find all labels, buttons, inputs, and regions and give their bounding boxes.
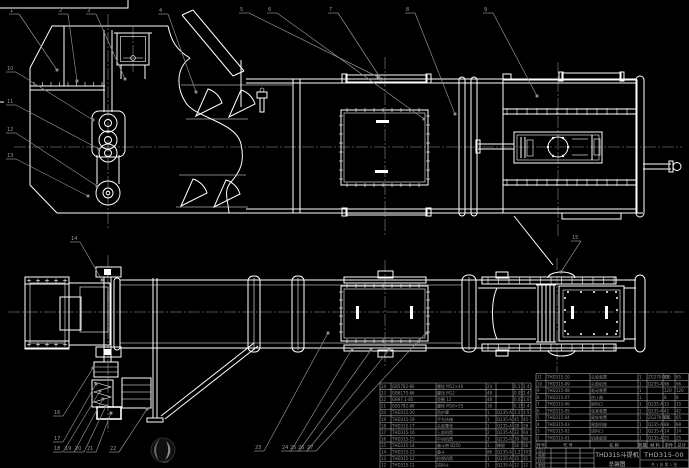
bucket: [196, 89, 222, 116]
leader-arrow: [96, 185, 99, 188]
bom-cell: 1: [639, 375, 642, 380]
balloon-13: 13: [6, 153, 89, 197]
leader-line: [63, 368, 93, 416]
bom-cell: GB5782-86: [392, 404, 415, 409]
bom-cell: 42: [676, 408, 682, 413]
bom-cell: 2.4: [523, 404, 530, 409]
bom-cell: 卸料口: [591, 401, 603, 407]
bom-cell: 45: [523, 417, 529, 422]
bom-cell: 30: [514, 436, 520, 441]
bolt-dot: [564, 330, 566, 332]
leader-line: [16, 159, 88, 196]
bom-cell: 12: [514, 463, 520, 468]
bom-cell: 0.05: [514, 391, 523, 396]
bom-cell: 平台扶梯: [437, 416, 453, 422]
bom-cell: 头部罩壳: [437, 422, 453, 428]
gear-housing: [92, 111, 125, 157]
bom-cell: Q235-A: [497, 450, 512, 455]
balloon-10: 10: [6, 66, 94, 121]
bom-cell: Q235-A: [648, 435, 663, 440]
balloon-8: 8: [405, 7, 456, 115]
drawing-subtitle: 总装图: [609, 460, 626, 468]
bom-cell: 中间机筒: [437, 435, 453, 441]
bom-cell: 12: [523, 463, 529, 468]
bom-cell: 14: [381, 450, 387, 455]
bom-cell: 1: [639, 415, 642, 420]
bom-cell: 11: [537, 375, 543, 380]
bom-cell: Q235-A: [497, 463, 512, 468]
balloon-number: 12: [7, 127, 13, 133]
bom-cell: THD315-01: [546, 435, 570, 440]
bom-cell: 3: [487, 436, 490, 441]
balloon-22: 22: [109, 408, 148, 452]
takeup-rod-right: [643, 161, 681, 172]
leader-arrow: [454, 113, 457, 116]
leader-line: [63, 391, 100, 452]
balloon-number: 5: [240, 7, 243, 13]
bom-cell: Q235-A: [497, 423, 512, 428]
bom-cell: 15: [664, 402, 670, 407]
leader-arrow: [124, 78, 127, 81]
bom-cell: 14: [676, 429, 682, 434]
bom-cell: 垫圈 12: [437, 396, 452, 402]
bom-cell: THD315-05: [546, 408, 570, 413]
leader-arrow: [370, 349, 373, 352]
bolt-dot: [615, 333, 617, 335]
approval-label: 审核: [538, 463, 546, 468]
bom-cell: 1: [639, 422, 642, 427]
bom-cell: 3.5: [523, 410, 530, 415]
bom-cell: 56: [523, 443, 529, 448]
balloon-number: 11: [7, 99, 13, 105]
balloon-6: 6: [267, 7, 425, 120]
assembly-drawing: 1234567891011121314151617181920212223242…: [0, 0, 689, 468]
bolt-dot: [593, 291, 595, 293]
bom-cell: 86: [487, 450, 493, 455]
balloon-23: 23: [254, 332, 329, 451]
balloon-number: 26: [298, 445, 304, 451]
bom-cell: 19: [381, 417, 387, 422]
balloon-number: 25: [290, 445, 296, 451]
balloon-number: 18: [54, 446, 60, 452]
leader-line: [80, 242, 102, 280]
bom-cell: 1: [487, 410, 490, 415]
bom-cell: THD315-20: [391, 410, 415, 415]
bom-cell: 检视机筒: [437, 455, 453, 461]
bom-cell: 4: [537, 422, 540, 427]
leader-arrow: [388, 349, 391, 352]
balloon-number: 14: [71, 236, 77, 242]
bom-cell: 尾轮装置: [591, 414, 607, 420]
bolt-dot: [580, 291, 582, 293]
bom-cell: 进料斗: [437, 462, 449, 468]
bolt-dot: [606, 333, 608, 335]
leader-arrow: [423, 118, 426, 121]
bom-cell: 28: [523, 423, 529, 428]
bom-cell: Q235-A: [648, 402, 663, 407]
bom-cell: 畚斗: [437, 449, 445, 455]
leader-line: [19, 14, 57, 70]
bom-cell: Q235-A: [497, 430, 512, 435]
bom-cell: 24: [487, 384, 493, 389]
bom-cell: 85: [664, 375, 670, 380]
bom-cell: 35: [523, 456, 529, 461]
bom-cell: 畚斗带 B250: [437, 442, 461, 448]
balloon-number: 19: [65, 446, 71, 452]
bolt-dot: [564, 297, 566, 299]
bom-cell: 1: [639, 381, 642, 386]
bucket-bolt: [257, 88, 267, 112]
balloon-number: 24: [282, 445, 288, 451]
bom-cell: THD315-02: [546, 429, 570, 434]
bom-cell: 15: [381, 443, 387, 448]
bom-cell: 3: [537, 429, 540, 434]
balloon-9: 9: [483, 7, 538, 97]
bom-cell: 24: [381, 384, 387, 389]
bom-cell: THD315-10: [546, 375, 570, 380]
bom-cell: 65: [664, 415, 670, 420]
drive-bracket: [122, 378, 151, 408]
bom-cell: 45: [514, 417, 520, 422]
bom-cell: 85: [676, 375, 682, 380]
door-handle: [375, 170, 388, 173]
elevation-view: [14, 10, 682, 265]
balloon-number: 22: [110, 446, 116, 452]
bom-cell: THD315-04: [546, 415, 570, 420]
leader-arrow: [56, 69, 59, 72]
bom-header-cell: 代 号: [563, 441, 573, 448]
bom-cell: 16: [381, 436, 387, 441]
leader-line: [74, 399, 103, 452]
balloon-number: 3: [87, 8, 90, 14]
bom-header-cell: 材 料: [650, 441, 661, 448]
bom-cell: 88: [676, 422, 682, 427]
bom-cell: 2.4: [523, 384, 530, 389]
balloon-number: 8: [406, 7, 409, 13]
bom-cell: 6: [537, 408, 540, 413]
balloon-2: 2: [58, 8, 78, 82]
bom-cell: THD315-03: [546, 422, 570, 427]
bom-cell: 9: [537, 388, 540, 393]
bom-table: 11THD315-10头轮装置1ZG270-500858510THD315-09…: [536, 374, 689, 442]
balloon-number: 1: [10, 8, 13, 14]
leader-line: [561, 241, 581, 272]
bom-cell: 18: [381, 423, 387, 428]
bom-cell: 1: [487, 417, 490, 422]
bom-cell: Q235-A: [648, 422, 663, 427]
bom-cell: 1: [639, 435, 642, 440]
bolt-dot: [580, 333, 582, 335]
balloon-number: 23: [255, 445, 261, 451]
leader-line: [493, 13, 537, 96]
door-handle: [376, 120, 389, 123]
bom-cell: 驱动装置: [591, 387, 607, 393]
bom-cell: Q235-A: [497, 410, 512, 415]
leader-arrow: [99, 390, 102, 393]
bom-cell: THD315-09: [546, 381, 570, 386]
bom-cell: 13: [381, 456, 387, 461]
bom-cell: 2: [537, 435, 540, 440]
bucket: [181, 179, 207, 206]
bom-cell: 橡胶: [497, 442, 505, 448]
bucket: [229, 90, 255, 117]
balloon-18: 18: [53, 390, 101, 452]
bom-cell: 120: [664, 388, 672, 393]
bom-cell: 防护罩: [437, 409, 449, 415]
leader-arrow: [87, 195, 90, 198]
bom-cell: 1: [639, 395, 642, 400]
bearing-bottom: [96, 347, 121, 357]
bom-cell: Q235-A: [497, 436, 512, 441]
bom-cell: 1: [639, 402, 642, 407]
bom-cell: 48: [487, 397, 493, 402]
bolt-dot: [616, 309, 618, 311]
balloon-number: 21: [87, 446, 93, 452]
bom-cell: 头轮装置: [591, 374, 607, 380]
bolt-dot: [593, 333, 595, 335]
title-block: THD315斗提机 总装图 THD315-00 共 1 张 第 1 张 设计制图…: [536, 448, 689, 468]
bom-cell: 2.4: [523, 391, 530, 396]
balloon-20: 20: [74, 405, 107, 452]
leader-line: [119, 409, 147, 452]
bucket-chute: [168, 26, 300, 213]
drawing-title: THD315斗提机: [594, 451, 639, 459]
door-handle: [410, 306, 413, 319]
bom-table: 24GB5782-86螺栓 M12×40240.12.423GB6170-86螺…: [380, 383, 531, 468]
bom-cell: THD315-14: [391, 443, 415, 448]
bom-cell: Q235-A: [497, 456, 512, 461]
bom-cell: THD315-11: [391, 463, 415, 468]
projection-line: [514, 216, 553, 265]
logo-watermark: [151, 438, 175, 463]
bom-cell: 1: [487, 423, 490, 428]
leader-arrow: [92, 119, 95, 122]
bom-cell: GB6170-86: [392, 391, 415, 396]
bom-cell: 张紧装置: [591, 407, 607, 413]
bom-cell: THD315-06: [546, 402, 570, 407]
bom-cell: 螺栓 M16×55: [437, 403, 464, 409]
balloon-number: 4: [159, 8, 162, 14]
bom-cell: 21: [381, 404, 387, 409]
bom-cell: 5: [537, 415, 540, 420]
head-drum: [60, 297, 81, 330]
bom-cell: 1: [487, 443, 490, 448]
coupling: [94, 362, 118, 377]
bom-cell: 28: [514, 423, 520, 428]
leader-line: [168, 14, 196, 92]
bom-cell: 1: [639, 388, 642, 393]
balloon-number: 6: [268, 7, 271, 13]
bom-header-row: 件号代 号名 称数量材 料单件总计: [536, 441, 689, 448]
bom-cell: 0.15: [514, 404, 523, 409]
bom-cell: 17: [381, 430, 387, 435]
leader-arrow: [327, 332, 330, 335]
bom-cell: 进料口: [591, 428, 603, 434]
bom-cell: 1: [487, 456, 490, 461]
bom-cell: 上部机筒: [437, 429, 453, 435]
bom-cell: 42: [664, 408, 670, 413]
balloon-number: 17: [54, 436, 60, 442]
tail-flange-plate: [559, 286, 624, 341]
bolt-dot: [606, 291, 608, 293]
leader-line: [264, 333, 328, 451]
balloon-number: 7: [329, 7, 332, 13]
balloon-number: 16: [54, 410, 60, 416]
support-leg: [147, 278, 258, 422]
bom-cell: THD315-17: [391, 423, 415, 428]
bom-cell: 10: [537, 381, 543, 386]
bom-cell: 8: [537, 395, 540, 400]
bom-cell: 0.1: [514, 384, 521, 389]
bom-cell: THD315-16: [391, 430, 415, 435]
leader-line: [307, 350, 389, 451]
bom-cell: 2: [487, 430, 490, 435]
bom-cell: 35: [514, 456, 520, 461]
bom-cell: 12: [381, 463, 387, 468]
leader-arrow: [425, 332, 428, 335]
leader-arrow: [101, 279, 104, 282]
leader-line: [68, 14, 77, 81]
leader-arrow: [536, 95, 539, 98]
leader-arrow: [102, 398, 105, 401]
leader-arrow: [195, 91, 198, 94]
bom-cell: 16: [487, 404, 493, 409]
balloon-number: 27: [307, 445, 313, 451]
balloon-12: 12: [6, 127, 98, 187]
leader-line: [63, 384, 96, 442]
bom-cell: 103: [523, 450, 531, 455]
bom-cell: 头部机壳: [591, 380, 607, 386]
bom-cell: THD315-19: [391, 417, 415, 422]
bom-cell: 120: [676, 388, 684, 393]
bom-cell: THD315-07: [546, 395, 570, 400]
cad-drawing-canvas: 1234567891011121314151617181920212223242…: [0, 0, 689, 468]
bom-cell: 螺母 M12: [437, 390, 455, 396]
bom-cell: 螺栓 M12×40: [437, 383, 464, 389]
leader-arrow: [95, 383, 98, 386]
bom-cell: 1: [487, 463, 490, 468]
leader-arrow: [105, 405, 108, 408]
discharge-spout: [182, 10, 244, 76]
inspection-door-plan: [341, 271, 428, 357]
leader-line: [299, 350, 371, 451]
leader-arrow: [351, 348, 354, 351]
bom-cell: 65: [676, 415, 682, 420]
leader-arrow: [380, 78, 383, 81]
bom-cell: GB5782-86: [392, 384, 415, 389]
bolt-dot: [616, 297, 618, 299]
bom-cell: 机座底架: [591, 434, 607, 440]
balloon-11: 11: [6, 99, 100, 150]
leader-line: [16, 72, 93, 120]
leader-arrow: [146, 408, 149, 411]
bolt-dot: [567, 333, 569, 335]
bom-cell: 96: [676, 381, 682, 386]
bom-cell: 8: [676, 395, 679, 400]
balloon-number: 10: [7, 66, 13, 72]
bom-cell: 1.2: [514, 450, 521, 455]
bom-cell: 1.0: [523, 397, 530, 402]
inspection-door-elevation: [341, 74, 431, 216]
bom-cell: 56: [514, 443, 520, 448]
bom-cell: 90: [523, 436, 529, 441]
leader-line: [16, 105, 99, 149]
bom-cell: 0.02: [514, 397, 523, 402]
bom-cell: 88: [664, 422, 670, 427]
bom-cell: 25: [676, 435, 682, 440]
bom-cell: 22: [381, 397, 387, 402]
balloon-21: 21: [86, 412, 112, 452]
bom-cell: 14: [664, 429, 670, 434]
leader-arrow: [98, 148, 101, 151]
approval-rows: 设计制图校对审核: [538, 448, 546, 468]
takeup-screw: [476, 140, 514, 153]
balloon-number: 13: [7, 153, 13, 159]
tail-section-elevation: [459, 72, 681, 265]
bom-cell: 64: [523, 430, 529, 435]
bom-cell: Q235-A: [648, 381, 663, 386]
bom-cell: THD315-08: [546, 388, 570, 393]
bom-cell: 3.5: [514, 410, 521, 415]
balloon-5: 5: [239, 7, 379, 78]
bolt-dot: [564, 321, 566, 323]
bom-cell: 15: [676, 402, 682, 407]
bom-cell: GB97.1-85: [392, 397, 414, 402]
bom-cell: 逆止器: [591, 394, 603, 400]
bom-cell: 23: [381, 391, 387, 396]
bom-header-cell: 单件: [665, 441, 673, 448]
head-section: [30, 10, 643, 213]
bom-cell: 8: [664, 395, 667, 400]
leader-arrow: [110, 412, 113, 415]
drawing-number: THD315-00: [643, 451, 684, 459]
leader-arrow: [92, 367, 95, 370]
bom-cell: 1: [639, 408, 642, 413]
sheet-note: 共 1 张 第 1 张: [651, 462, 677, 467]
leader-arrow: [76, 80, 79, 83]
takeup-guides-plan: [536, 285, 556, 342]
leader-line: [16, 133, 97, 186]
bom-cell: THD315-12: [391, 456, 415, 461]
bom-cell: THD315-15: [391, 436, 415, 441]
bom-cell: 48: [487, 391, 493, 396]
door-handle: [356, 306, 359, 319]
bom-cell: 32: [514, 430, 520, 435]
bom-cell: 7: [537, 402, 540, 407]
bom-cell: 尾部机座: [591, 421, 607, 427]
balloon-16: 16: [53, 367, 94, 416]
bom-tables-layer: 24GB5782-86螺栓 M12×40240.12.423GB6170-86螺…: [380, 374, 689, 468]
bom-header-cell: 总计: [678, 441, 686, 448]
bolt-dot: [616, 330, 618, 332]
leader-line: [415, 13, 455, 114]
bom-cell: Q235-A: [648, 408, 663, 413]
bom-cell: THD315-13: [391, 450, 415, 455]
balloon-4: 4: [158, 8, 197, 93]
bom-header-cell: 名 称: [609, 441, 619, 448]
bolt-dot: [616, 321, 618, 323]
bom-header-cell: 数量: [638, 441, 646, 448]
bom-cell: 20: [381, 410, 387, 415]
balloon-15: 15: [560, 235, 581, 273]
balloon-number: 20: [75, 446, 81, 452]
balloon-number: 15: [572, 235, 578, 241]
bolt-dot: [564, 309, 566, 311]
leader-line: [338, 13, 381, 79]
balloon-number: 9: [484, 7, 487, 13]
balloon-19: 19: [64, 398, 104, 452]
tail-plan: [462, 272, 645, 356]
